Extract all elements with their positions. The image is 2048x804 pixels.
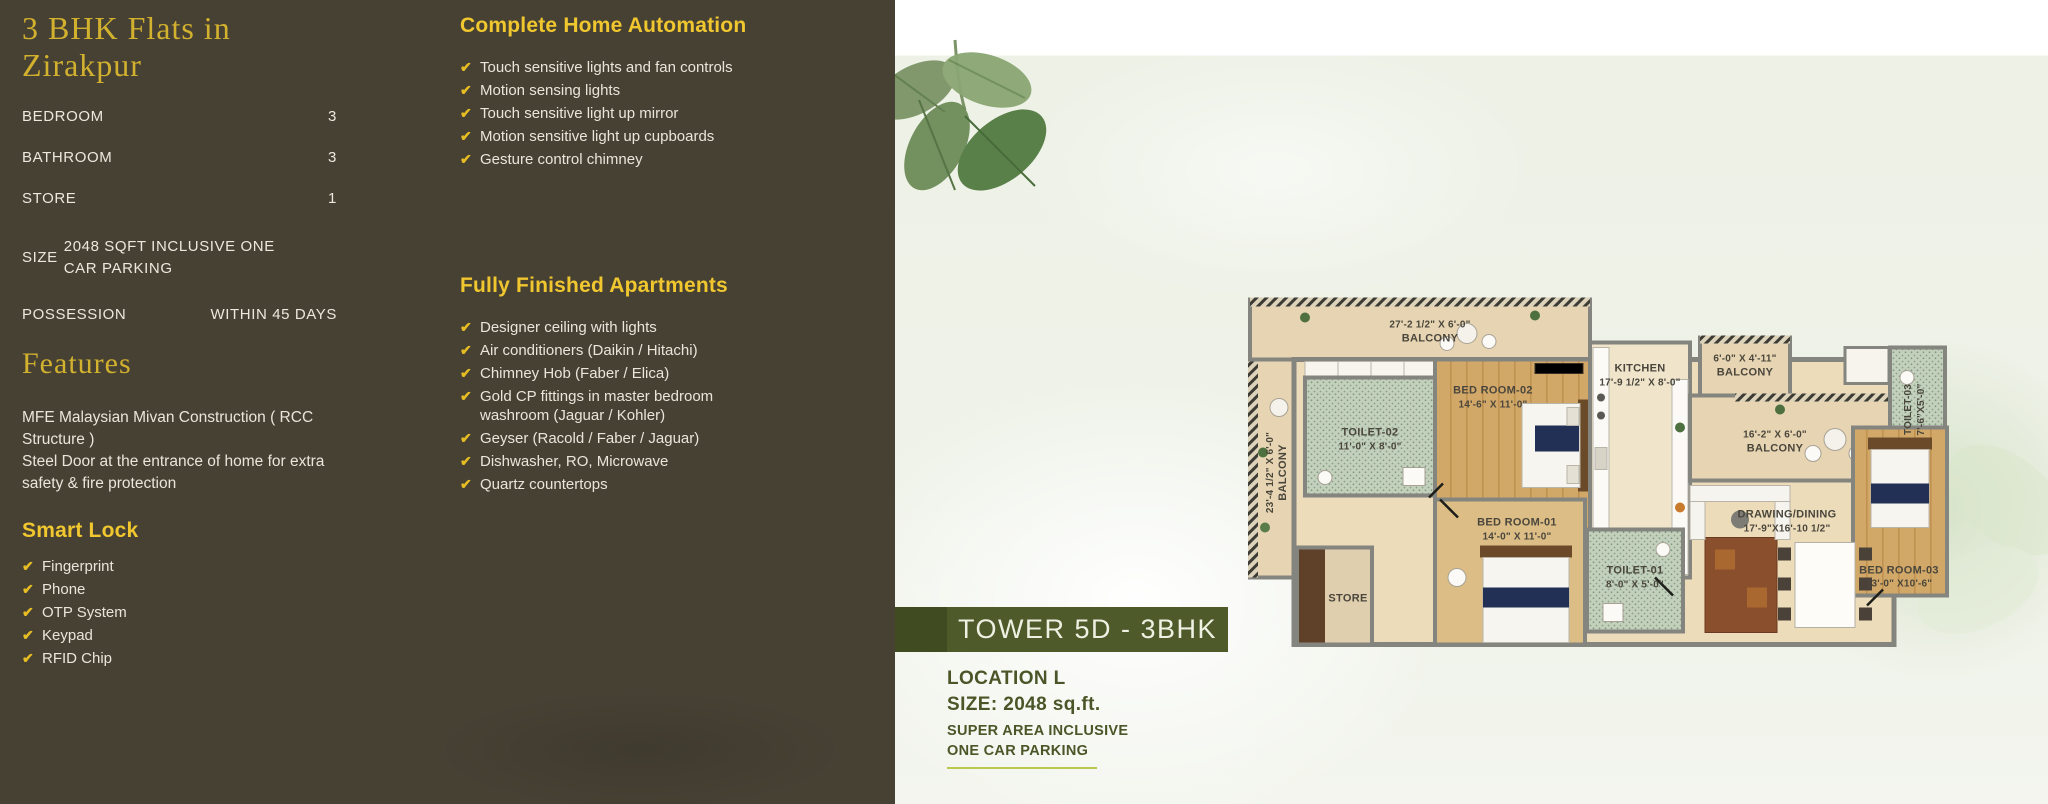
spec-value: 1 xyxy=(328,190,337,208)
smart-lock-heading: Smart Lock xyxy=(22,519,337,543)
spec-label: SIZE xyxy=(22,249,58,267)
list-item: ✔Dishwasher, RO, Microwave xyxy=(460,452,900,471)
tower-banner-tab xyxy=(895,607,947,652)
svg-text:BALCONY: BALCONY xyxy=(1717,367,1774,379)
list-item: ✔Geyser (Racold / Faber / Jaguar) xyxy=(460,429,900,448)
spec-row-bedroom: BEDROOM 3 xyxy=(22,108,337,126)
check-icon: ✔ xyxy=(22,649,42,668)
svg-text:BALCONY: BALCONY xyxy=(1277,444,1289,501)
home-automation-section: Complete Home Automation ✔Touch sensitiv… xyxy=(460,14,900,173)
check-icon: ✔ xyxy=(22,626,42,645)
specs-column: 3 BHK Flats in Zirakpur BEDROOM 3 BATHRO… xyxy=(22,10,337,672)
spec-label: BATHROOM xyxy=(22,149,112,167)
svg-text:BALCONY: BALCONY xyxy=(1747,443,1804,455)
location-block: LOCATION L SIZE: 2048 sq.ft. SUPER AREA … xyxy=(947,666,1128,769)
paper-wash xyxy=(1015,40,1535,300)
list-item: ✔Chimney Hob (Faber / Elica) xyxy=(460,364,900,383)
super-area-note-line1: SUPER AREA INCLUSIVE xyxy=(947,721,1128,741)
features-line2: Steel Door at the entrance of home for e… xyxy=(22,451,352,495)
room-label-bedroom-03: BED ROOM-03 xyxy=(1859,565,1939,577)
svg-text:BALCONY: BALCONY xyxy=(1402,333,1459,345)
tower-banner-label: TOWER 5D - 3BHK xyxy=(947,607,1228,652)
room-label-bedroom-02: BED ROOM-02 xyxy=(1453,385,1533,397)
list-item-label: Keypad xyxy=(42,626,93,645)
list-item: ✔OTP System xyxy=(22,603,337,622)
list-item-label: Phone xyxy=(42,580,85,599)
list-item-label: Touch sensitive light up mirror xyxy=(480,104,678,123)
room-label-store: STORE xyxy=(1328,593,1367,605)
finished-apartments-heading: Fully Finished Apartments xyxy=(460,274,900,298)
room-label-balcony-small: 6'-0" X 4'-11" xyxy=(1713,354,1776,365)
list-item: ✔Phone xyxy=(22,580,337,599)
check-icon: ✔ xyxy=(460,318,480,337)
tower-banner: TOWER 5D - 3BHK xyxy=(895,607,1228,652)
spec-label: STORE xyxy=(22,190,76,208)
list-item: ✔Keypad xyxy=(22,626,337,645)
check-icon: ✔ xyxy=(460,452,480,471)
check-icon: ✔ xyxy=(460,104,480,123)
spec-label: BEDROOM xyxy=(22,108,104,126)
list-item-label: Gold CP fittings in master bedroom washr… xyxy=(480,387,760,425)
list-item-label: Air conditioners (Daikin / Hitachi) xyxy=(480,341,698,360)
svg-text:7'-6"X5'-0": 7'-6"X5'-0" xyxy=(1916,383,1927,435)
spec-label: POSSESSION xyxy=(22,306,126,324)
check-icon: ✔ xyxy=(460,81,480,100)
list-item-label: Touch sensitive lights and fan controls xyxy=(480,58,733,77)
list-item: ✔Air conditioners (Daikin / Hitachi) xyxy=(460,341,900,360)
room-label-toilet-02: TOILET-02 xyxy=(1342,427,1399,439)
room-label-kitchen: KITCHEN xyxy=(1615,363,1666,375)
check-icon: ✔ xyxy=(460,341,480,360)
finished-apartments-list: ✔Designer ceiling with lights ✔Air condi… xyxy=(460,318,900,494)
floor-plan: 27'-2 1/2" X 6'-0" BALCONY 23'-4 1/2" X … xyxy=(1235,286,1955,654)
spec-value: WITHIN 45 DAYS xyxy=(211,306,337,324)
list-item-label: Designer ceiling with lights xyxy=(480,318,657,337)
home-automation-list: ✔Touch sensitive lights and fan controls… xyxy=(460,58,900,169)
list-item: ✔RFID Chip xyxy=(22,649,337,668)
spec-row-bathroom: BATHROOM 3 xyxy=(22,149,337,167)
room-label-toilet-01: TOILET-01 xyxy=(1607,565,1664,577)
room-label-balcony-top: 27'-2 1/2" X 6'-0" xyxy=(1389,320,1470,331)
list-item-label: Fingerprint xyxy=(42,557,114,576)
list-item: ✔Quartz countertops xyxy=(460,475,900,494)
list-item: ✔Gold CP fittings in master bedroom wash… xyxy=(460,387,760,425)
list-item-label: Motion sensitive light up cupboards xyxy=(480,127,714,146)
spec-row-size: SIZE 2048 SQFT INCLUSIVE ONE CAR PARKING xyxy=(22,236,337,280)
list-item: ✔Touch sensitive light up mirror xyxy=(460,104,900,123)
spec-value: 3 xyxy=(328,149,337,167)
location-label: LOCATION L xyxy=(947,666,1128,692)
list-item: ✔Designer ceiling with lights xyxy=(460,318,900,337)
check-icon: ✔ xyxy=(22,557,42,576)
svg-text:13'-0" X10'-6": 13'-0" X10'-6" xyxy=(1866,579,1933,590)
panel-watermark xyxy=(430,690,850,804)
finished-apartments-section: Fully Finished Apartments ✔Designer ceil… xyxy=(460,274,900,498)
check-icon: ✔ xyxy=(460,475,480,494)
list-item-label: Dishwasher, RO, Microwave xyxy=(480,452,668,471)
features-text: MFE Malaysian Mivan Construction ( RCC S… xyxy=(22,407,352,495)
room-label-drawing-dining: DRAWING/DINING xyxy=(1738,509,1837,521)
size-label: SIZE: 2048 sq.ft. xyxy=(947,692,1128,718)
svg-text:14'-0" X 11'-0": 14'-0" X 11'-0" xyxy=(1483,532,1552,543)
check-icon: ✔ xyxy=(460,58,480,77)
spec-row-possession: POSSESSION WITHIN 45 DAYS xyxy=(22,306,337,324)
features-line1: MFE Malaysian Mivan Construction ( RCC S… xyxy=(22,407,352,451)
super-area-note-line2: ONE CAR PARKING xyxy=(947,741,1128,761)
list-item-label: RFID Chip xyxy=(42,649,112,668)
svg-text:17'-9 1/2" X 8'-0": 17'-9 1/2" X 8'-0" xyxy=(1599,378,1680,389)
spec-value: 3 xyxy=(328,108,337,126)
features-heading: Features xyxy=(22,347,337,381)
list-item: ✔Fingerprint xyxy=(22,557,337,576)
home-automation-heading: Complete Home Automation xyxy=(460,14,900,38)
list-item-label: OTP System xyxy=(42,603,127,622)
check-icon: ✔ xyxy=(460,364,480,383)
check-icon: ✔ xyxy=(460,387,480,406)
list-item-label: Geyser (Racold / Faber / Jaguar) xyxy=(480,429,699,448)
svg-text:23'-4 1/2" X 6'-0": 23'-4 1/2" X 6'-0" xyxy=(1265,432,1276,513)
room-label-bedroom-01: BED ROOM-01 xyxy=(1477,517,1557,529)
list-item: ✔Motion sensitive light up cupboards xyxy=(460,127,900,146)
info-panel: 3 BHK Flats in Zirakpur BEDROOM 3 BATHRO… xyxy=(0,0,895,804)
check-icon: ✔ xyxy=(22,603,42,622)
list-item: ✔Touch sensitive lights and fan controls xyxy=(460,58,900,77)
check-icon: ✔ xyxy=(460,429,480,448)
list-item: ✔Gesture control chimney xyxy=(460,150,900,169)
brochure-page: 27'-2 1/2" X 6'-0" BALCONY 23'-4 1/2" X … xyxy=(0,0,2048,804)
room-label-balcony-mid: 16'-2" X 6'-0" xyxy=(1743,430,1807,441)
list-item-label: Motion sensing lights xyxy=(480,81,620,100)
check-icon: ✔ xyxy=(22,580,42,599)
paper-background: 27'-2 1/2" X 6'-0" BALCONY 23'-4 1/2" X … xyxy=(895,0,2048,804)
spec-value: 2048 SQFT INCLUSIVE ONE CAR PARKING xyxy=(64,236,306,280)
spec-rows: BEDROOM 3 BATHROOM 3 STORE 1 SIZE 2048 S… xyxy=(22,108,337,324)
svg-text:TOILET-03: TOILET-03 xyxy=(1903,384,1914,435)
check-icon: ✔ xyxy=(460,127,480,146)
smart-lock-list: ✔Fingerprint ✔Phone ✔OTP System ✔Keypad … xyxy=(22,557,337,668)
svg-text:8'-0" X 5'-0": 8'-0" X 5'-0" xyxy=(1606,580,1664,591)
list-item: ✔Motion sensing lights xyxy=(460,81,900,100)
note-underline xyxy=(947,767,1097,769)
list-item-label: Chimney Hob (Faber / Elica) xyxy=(480,364,669,383)
svg-text:11'-0" X 8'-0": 11'-0" X 8'-0" xyxy=(1338,442,1401,453)
spec-row-store: STORE 1 xyxy=(22,190,337,208)
page-title: 3 BHK Flats in Zirakpur xyxy=(22,10,337,84)
check-icon: ✔ xyxy=(460,150,480,169)
svg-text:14'-6" X 11'-0": 14'-6" X 11'-0" xyxy=(1459,400,1528,411)
svg-text:17'-9"X16'-10 1/2": 17'-9"X16'-10 1/2" xyxy=(1744,524,1831,535)
list-item-label: Quartz countertops xyxy=(480,475,608,494)
list-item-label: Gesture control chimney xyxy=(480,150,643,169)
